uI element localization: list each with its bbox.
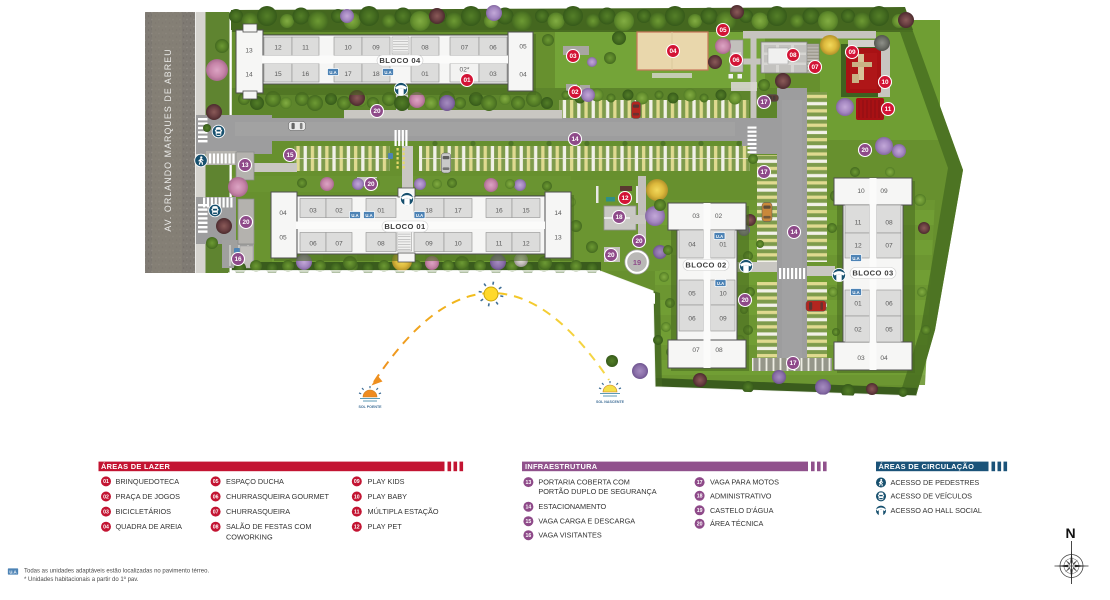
svg-text:03: 03 xyxy=(569,53,577,60)
svg-text:20: 20 xyxy=(697,522,703,528)
svg-text:17: 17 xyxy=(760,99,768,106)
svg-text:VAGA CARGA E DESCARGA: VAGA CARGA E DESCARGA xyxy=(538,517,635,526)
svg-text:PLAY KIDS: PLAY KIDS xyxy=(368,477,405,486)
svg-text:07: 07 xyxy=(461,45,469,52)
svg-text:ÁREAS DE CIRCULAÇÃO: ÁREAS DE CIRCULAÇÃO xyxy=(879,462,975,471)
svg-text:19: 19 xyxy=(697,508,703,514)
svg-text:U.A: U.A xyxy=(329,70,336,75)
svg-text:12: 12 xyxy=(854,243,862,250)
svg-text:05: 05 xyxy=(688,291,696,298)
svg-text:14: 14 xyxy=(245,72,253,79)
svg-text:U.A: U.A xyxy=(852,256,859,261)
svg-text:08: 08 xyxy=(885,220,893,227)
svg-text:09: 09 xyxy=(848,49,856,56)
svg-text:01: 01 xyxy=(421,71,429,78)
svg-text:ADMINISTRATIVO: ADMINISTRATIVO xyxy=(710,491,772,500)
svg-text:U.A: U.A xyxy=(716,234,723,239)
svg-text:05: 05 xyxy=(213,479,219,485)
svg-text:20: 20 xyxy=(635,238,643,245)
svg-text:17: 17 xyxy=(789,360,797,367)
svg-text:04: 04 xyxy=(669,48,677,55)
svg-text:01: 01 xyxy=(103,479,109,485)
svg-text:04: 04 xyxy=(103,525,109,531)
svg-text:11: 11 xyxy=(855,220,862,227)
svg-text:14: 14 xyxy=(790,229,798,236)
svg-text:05: 05 xyxy=(719,27,727,34)
svg-text:ACESSO AO HALL SOCIAL: ACESSO AO HALL SOCIAL xyxy=(891,506,982,515)
svg-text:10: 10 xyxy=(881,79,889,86)
svg-text:08: 08 xyxy=(213,525,219,531)
svg-text:04: 04 xyxy=(688,242,696,249)
svg-text:02: 02 xyxy=(335,208,343,215)
svg-text:VAGA VISITANTES: VAGA VISITANTES xyxy=(538,531,602,540)
svg-text:ACESSO DE PEDESTRES: ACESSO DE PEDESTRES xyxy=(891,478,980,487)
svg-text:SALÃO DE FESTAS COM: SALÃO DE FESTAS COM xyxy=(226,522,311,531)
svg-text:13: 13 xyxy=(241,162,249,169)
svg-text:17: 17 xyxy=(697,480,703,486)
svg-text:COWORKING: COWORKING xyxy=(226,533,273,542)
svg-text:02: 02 xyxy=(103,494,109,500)
svg-text:11: 11 xyxy=(885,106,892,113)
svg-text:PORTÃO DUPLO DE SEGURANÇA: PORTÃO DUPLO DE SEGURANÇA xyxy=(538,487,656,496)
svg-text:BRINQUEDOTECA: BRINQUEDOTECA xyxy=(116,477,180,486)
svg-text:QUADRA DE AREIA: QUADRA DE AREIA xyxy=(116,522,183,531)
svg-text:N: N xyxy=(1065,525,1075,541)
svg-text:05: 05 xyxy=(885,327,893,334)
svg-text:07: 07 xyxy=(692,347,700,354)
svg-text:AV. ORLANDO MARQUES DE ABREU: AV. ORLANDO MARQUES DE ABREU xyxy=(163,48,173,231)
svg-text:02: 02 xyxy=(571,89,579,96)
svg-text:PLAY BABY: PLAY BABY xyxy=(368,492,408,501)
svg-text:VAGA PARA MOTOS: VAGA PARA MOTOS xyxy=(710,478,779,487)
svg-text:15: 15 xyxy=(526,519,532,525)
svg-text:19: 19 xyxy=(633,258,641,267)
svg-text:06: 06 xyxy=(885,301,893,308)
svg-text:09: 09 xyxy=(372,45,380,52)
svg-text:11: 11 xyxy=(354,509,360,515)
svg-text:17: 17 xyxy=(454,208,462,215)
svg-text:17: 17 xyxy=(760,169,768,176)
svg-text:07: 07 xyxy=(885,243,893,250)
svg-text:SOL POENTE: SOL POENTE xyxy=(358,405,382,409)
svg-text:02: 02 xyxy=(854,327,862,334)
svg-text:02: 02 xyxy=(715,213,723,220)
svg-text:ESTACIONAMENTO: ESTACIONAMENTO xyxy=(538,502,606,511)
svg-text:08: 08 xyxy=(789,52,797,59)
svg-text:03: 03 xyxy=(309,208,317,215)
svg-text:16: 16 xyxy=(234,256,242,263)
svg-text:08: 08 xyxy=(715,347,723,354)
svg-text:16: 16 xyxy=(526,533,532,539)
svg-text:08: 08 xyxy=(377,241,385,248)
svg-text:03: 03 xyxy=(692,213,700,220)
svg-text:08: 08 xyxy=(421,45,429,52)
svg-text:03: 03 xyxy=(857,355,865,362)
svg-text:CHURRASQUEIRA GOURMET: CHURRASQUEIRA GOURMET xyxy=(226,492,330,501)
svg-text:12: 12 xyxy=(621,195,629,202)
svg-text:ÁREAS DE LAZER: ÁREAS DE LAZER xyxy=(101,462,170,471)
svg-text:02*: 02* xyxy=(460,67,470,74)
svg-text:05: 05 xyxy=(279,235,287,242)
svg-text:12: 12 xyxy=(522,241,530,248)
svg-text:09: 09 xyxy=(354,479,360,485)
svg-text:18: 18 xyxy=(697,494,703,500)
svg-text:20: 20 xyxy=(607,252,615,259)
svg-text:INFRAESTRUTURA: INFRAESTRUTURA xyxy=(525,462,598,471)
svg-text:06: 06 xyxy=(213,494,219,500)
svg-text:01: 01 xyxy=(463,77,471,84)
svg-text:BLOCO 02: BLOCO 02 xyxy=(685,261,726,270)
svg-text:04: 04 xyxy=(279,210,287,217)
svg-text:01: 01 xyxy=(854,301,862,308)
svg-text:ÁREA TÉCNICA: ÁREA TÉCNICA xyxy=(710,519,764,528)
svg-text:06: 06 xyxy=(309,241,317,248)
svg-text:14: 14 xyxy=(571,136,579,143)
svg-text:20: 20 xyxy=(242,219,250,226)
svg-text:U.A: U.A xyxy=(9,569,16,574)
svg-text:12: 12 xyxy=(354,525,360,531)
svg-text:04: 04 xyxy=(880,355,888,362)
svg-text:11: 11 xyxy=(302,45,309,52)
svg-text:17: 17 xyxy=(344,71,352,78)
svg-text:10: 10 xyxy=(719,291,727,298)
svg-text:U.A: U.A xyxy=(717,281,724,286)
svg-text:PRAÇA DE JOGOS: PRAÇA DE JOGOS xyxy=(116,492,181,501)
svg-text:14: 14 xyxy=(526,505,532,511)
svg-text:* Unidades habitacionais a par: * Unidades habitacionais a partir do 1º … xyxy=(24,576,139,583)
svg-text:10: 10 xyxy=(344,45,352,52)
svg-text:13: 13 xyxy=(526,480,532,486)
svg-text:07: 07 xyxy=(213,509,219,515)
svg-text:15: 15 xyxy=(286,152,294,159)
svg-text:BLOCO 03: BLOCO 03 xyxy=(852,269,893,278)
svg-text:11: 11 xyxy=(496,241,503,248)
svg-text:SOL NASCENTE: SOL NASCENTE xyxy=(596,400,625,404)
svg-text:18: 18 xyxy=(425,208,433,215)
svg-text:04: 04 xyxy=(519,72,527,79)
svg-text:09: 09 xyxy=(719,316,727,323)
svg-text:CHURRASQUEIRA: CHURRASQUEIRA xyxy=(226,507,290,516)
svg-text:20: 20 xyxy=(741,297,749,304)
svg-text:PORTARIA COBERTA COM: PORTARIA COBERTA COM xyxy=(538,478,630,487)
svg-text:Todas as unidades adaptáveis e: Todas as unidades adaptáveis estão local… xyxy=(24,569,209,575)
svg-text:03: 03 xyxy=(489,71,497,78)
svg-text:BLOCO 04: BLOCO 04 xyxy=(379,56,421,65)
svg-text:16: 16 xyxy=(302,71,310,78)
svg-text:CASTELO D'ÁGUA: CASTELO D'ÁGUA xyxy=(710,506,774,515)
svg-text:10: 10 xyxy=(454,241,462,248)
svg-text:BICICLETÁRIOS: BICICLETÁRIOS xyxy=(116,507,172,516)
svg-text:07: 07 xyxy=(811,64,819,71)
svg-text:16: 16 xyxy=(495,208,503,215)
svg-text:15: 15 xyxy=(522,208,530,215)
svg-text:U.A: U.A xyxy=(416,213,423,218)
svg-text:13: 13 xyxy=(245,48,253,55)
svg-text:07: 07 xyxy=(335,241,343,248)
svg-text:U.A: U.A xyxy=(852,290,859,295)
svg-text:10: 10 xyxy=(857,188,865,195)
svg-text:ESPAÇO DUCHA: ESPAÇO DUCHA xyxy=(226,477,284,486)
svg-text:U.A: U.A xyxy=(351,213,358,218)
svg-text:15: 15 xyxy=(274,71,282,78)
svg-text:09: 09 xyxy=(425,241,433,248)
svg-text:05: 05 xyxy=(519,44,527,51)
svg-text:ACESSO DE VEÍCULOS: ACESSO DE VEÍCULOS xyxy=(891,492,973,501)
svg-text:06: 06 xyxy=(489,45,497,52)
svg-text:20: 20 xyxy=(861,147,869,154)
svg-text:BLOCO 01: BLOCO 01 xyxy=(384,222,426,231)
svg-text:01: 01 xyxy=(377,208,385,215)
svg-text:13: 13 xyxy=(554,235,562,242)
svg-text:20: 20 xyxy=(367,181,375,188)
svg-text:01: 01 xyxy=(719,242,727,249)
svg-text:09: 09 xyxy=(880,188,888,195)
svg-text:14: 14 xyxy=(554,210,562,217)
svg-text:12: 12 xyxy=(274,45,282,52)
svg-text:PLAY PET: PLAY PET xyxy=(368,522,403,531)
svg-text:03: 03 xyxy=(103,509,109,515)
svg-text:20: 20 xyxy=(373,108,381,115)
svg-text:18: 18 xyxy=(372,71,380,78)
svg-text:10: 10 xyxy=(354,494,360,500)
svg-text:06: 06 xyxy=(688,316,696,323)
svg-text:U.A: U.A xyxy=(384,70,391,75)
svg-text:06: 06 xyxy=(732,57,740,64)
svg-text:18: 18 xyxy=(615,214,623,221)
svg-text:MÚLTIPLA ESTAÇÃO: MÚLTIPLA ESTAÇÃO xyxy=(368,507,439,516)
svg-text:U.A: U.A xyxy=(365,213,372,218)
